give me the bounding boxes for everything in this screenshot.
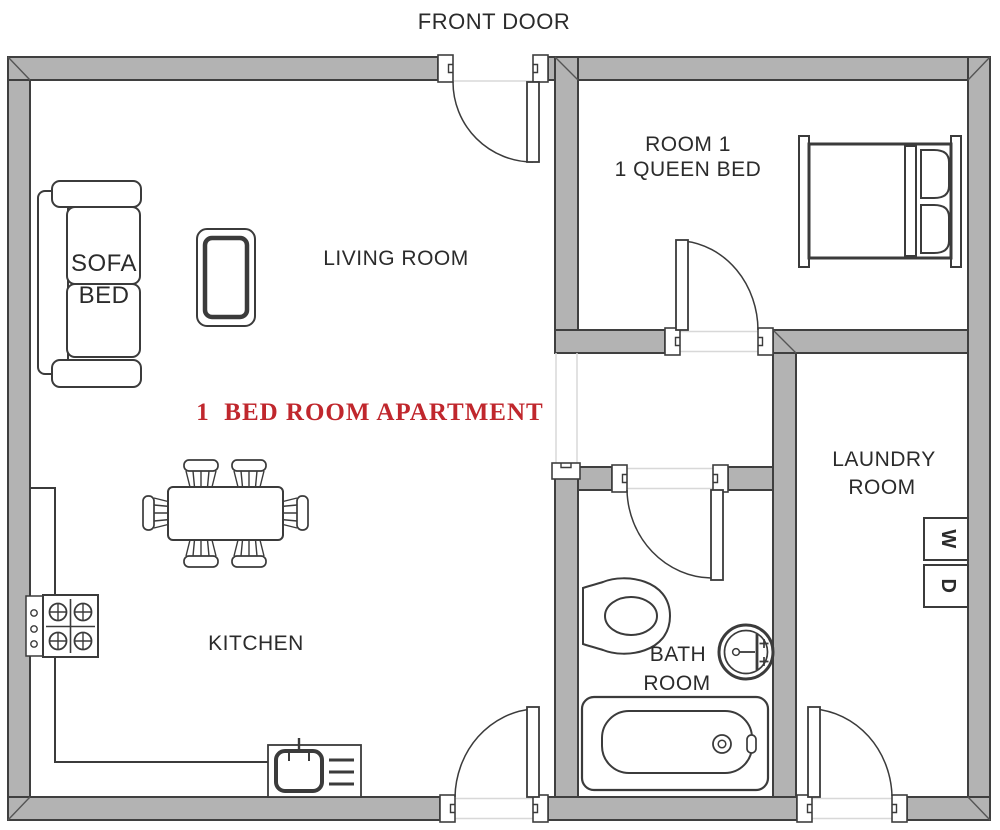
top-outer-wall-left (8, 57, 438, 80)
bathroom-top-wall-left (578, 467, 612, 490)
room1-left-wall (555, 57, 578, 330)
chair (281, 496, 308, 530)
dryer-box: D (924, 565, 968, 607)
chair (232, 460, 266, 487)
dryer-label: D (937, 579, 959, 594)
laundry-door-swing (808, 707, 892, 797)
bathroom-door-jamb-right (713, 465, 728, 492)
kitchen-label: KITCHEN (208, 632, 304, 655)
queen-bed (799, 136, 961, 267)
bottom-outer-wall-left (8, 797, 440, 820)
chair (184, 460, 218, 487)
laundry-label-line2: ROOM (848, 476, 915, 499)
room1-door-jamb-right (758, 328, 773, 355)
bathroom-top-wall-right (728, 467, 773, 490)
pillow (921, 205, 949, 253)
laundry-door-jamb-left (797, 795, 812, 822)
plan-title: 1 BED ROOM APARTMENT (196, 399, 543, 426)
bathroom-sink-icon (719, 625, 773, 679)
bathroom-left-wall (555, 467, 578, 797)
room1-bottom-wall-left (555, 330, 665, 353)
floor-plan: W D FRONT DOOR LIVING ROOM SOFA BED 1 BE… (0, 0, 1000, 830)
kitchen-sink-icon (268, 738, 361, 797)
living-room-label: LIVING ROOM (323, 247, 469, 270)
laundry-label-line1: LAUNDRY (832, 448, 935, 471)
room1-door-swing (676, 240, 758, 330)
chair (232, 540, 266, 567)
washer-box: W (924, 518, 968, 560)
bathroom-door-swing (627, 490, 723, 580)
left-outer-wall (8, 57, 30, 820)
pillow (921, 150, 949, 198)
kitchen-door-jamb-right (533, 795, 548, 822)
bathroom-door-jamb-left (612, 465, 627, 492)
room1-door-jamb-left (665, 328, 680, 355)
sofa-label-line1: SOFA (71, 250, 137, 277)
bathroom-label-line1: BATH (650, 643, 706, 666)
hall-wall-cap (552, 463, 580, 479)
front-door-jamb-right (533, 55, 548, 82)
front-door-swing (453, 82, 539, 162)
room1-bottom-wall-right (773, 330, 968, 353)
sofa-label-line2: BED (79, 282, 130, 309)
dining-set (143, 460, 308, 567)
bathroom-label-line2: ROOM (643, 672, 710, 695)
bottom-outer-wall-mid (548, 797, 797, 820)
top-outer-wall-right (548, 57, 990, 80)
stove-icon (26, 595, 98, 657)
room1-label-line1: ROOM 1 (645, 133, 731, 156)
chair (184, 540, 218, 567)
washer-label: W (937, 529, 959, 548)
coffee-table (197, 229, 255, 326)
laundry-door-jamb-right (892, 795, 907, 822)
chair (143, 496, 170, 530)
bottom-outer-wall-right (907, 797, 990, 820)
laundry-left-wall (773, 353, 796, 797)
kitchen-door-jamb-left (440, 795, 455, 822)
kitchen-door-swing (455, 707, 539, 797)
front-door-jamb-left (438, 55, 453, 82)
floor-plan-canvas: W D FRONT DOOR LIVING ROOM SOFA BED 1 BE… (0, 0, 1000, 830)
front-door-label: FRONT DOOR (418, 9, 570, 34)
dining-table (168, 487, 283, 540)
right-outer-wall (968, 57, 990, 820)
bathtub-icon (582, 697, 768, 790)
room1-label-line2: 1 QUEEN BED (615, 158, 762, 181)
